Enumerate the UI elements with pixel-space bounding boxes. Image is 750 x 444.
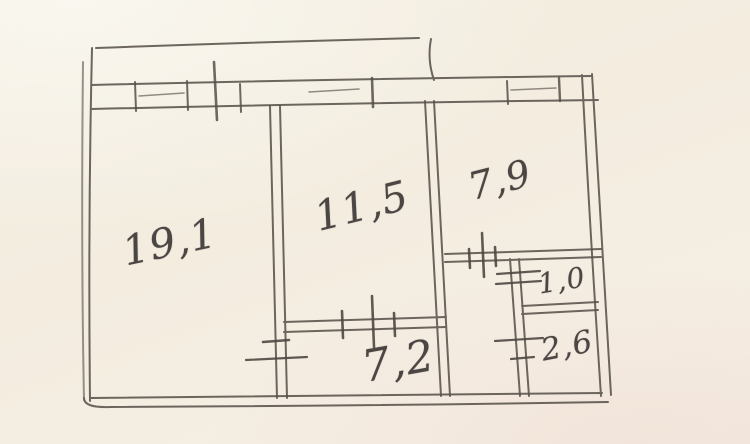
scanned-floorplan-page: 19,1 11,5 7,9 7,2 1,0 2,6 [0, 0, 750, 444]
top-stub-mark [430, 39, 434, 80]
window-marks [135, 62, 560, 120]
